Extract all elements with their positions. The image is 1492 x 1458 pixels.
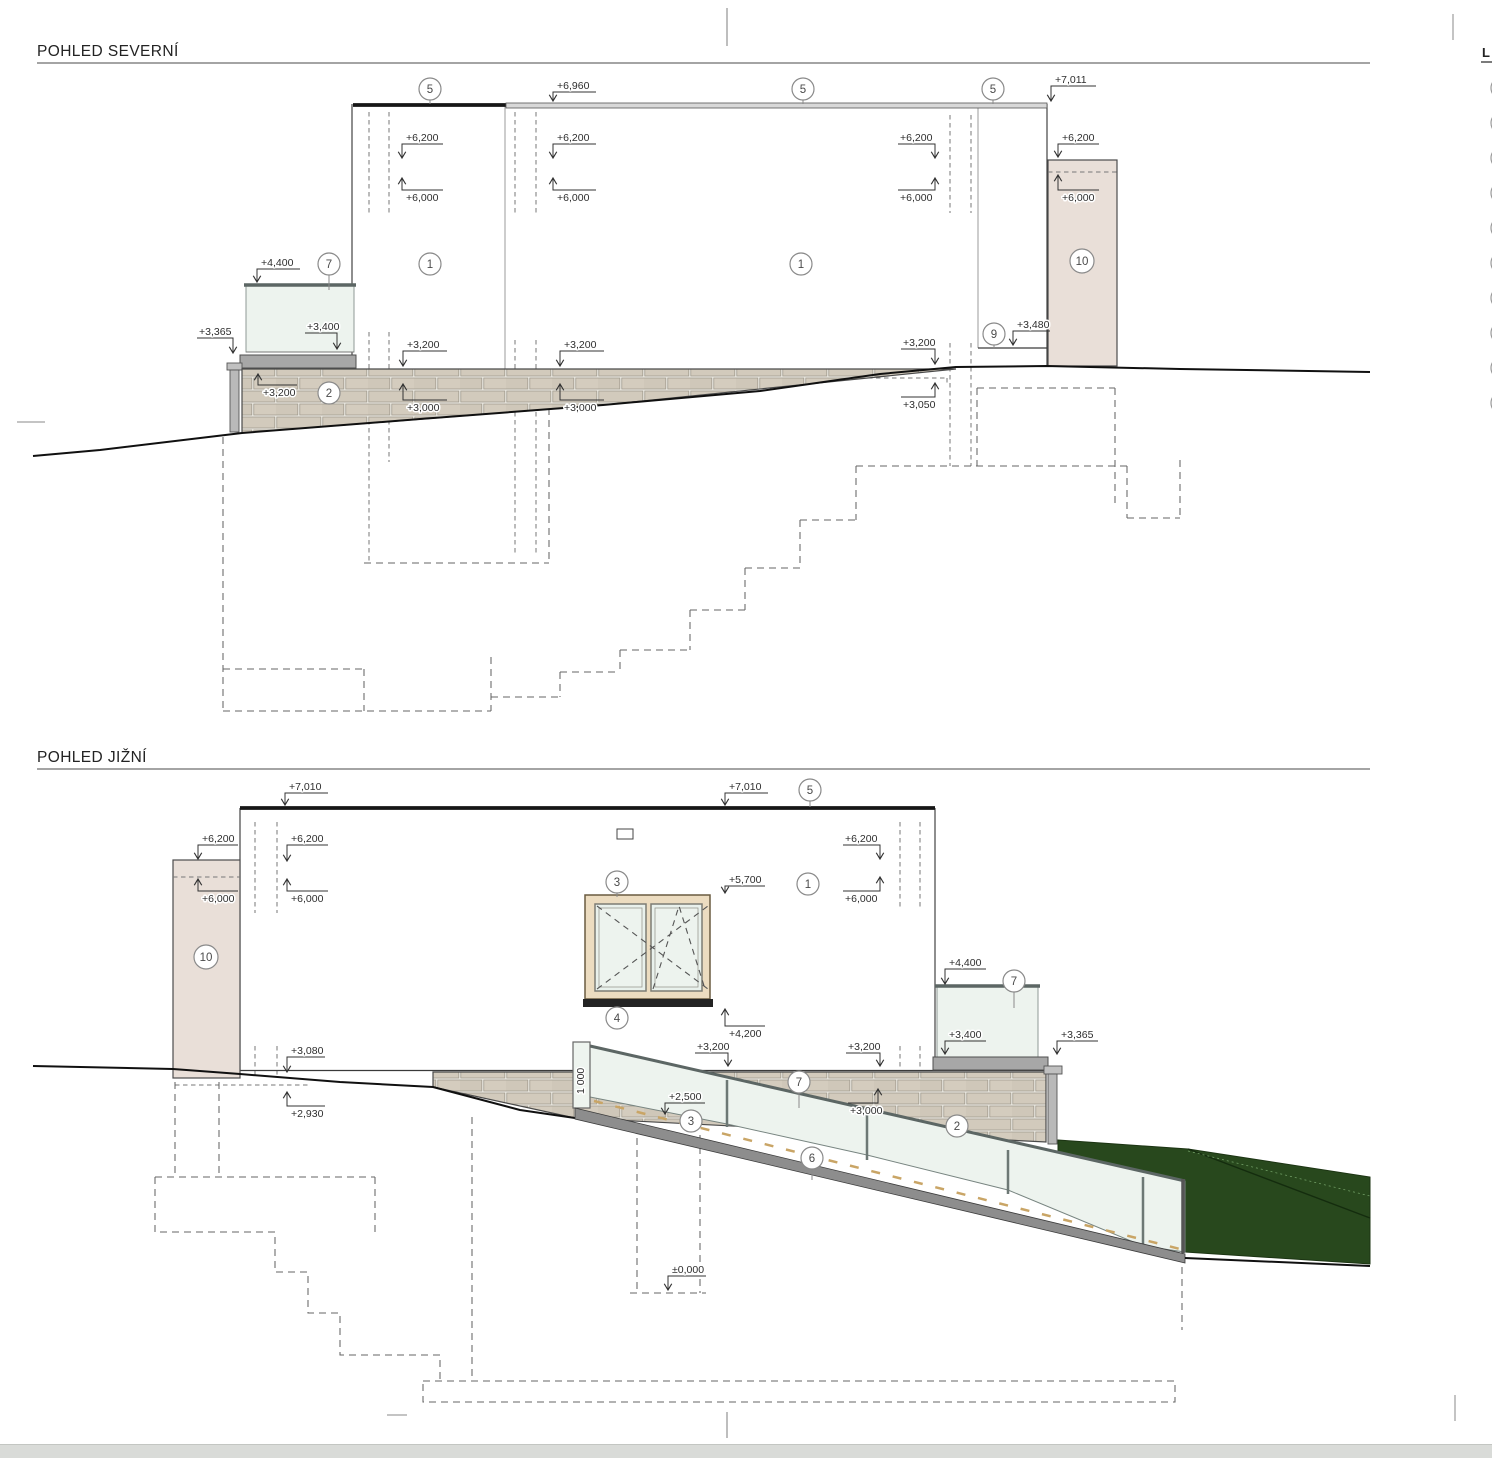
svg-text:7: 7 xyxy=(326,259,332,271)
callout-balloon: 2 xyxy=(946,1115,968,1137)
svg-text:1: 1 xyxy=(798,259,804,271)
legend-heading: L xyxy=(1482,45,1490,60)
svg-text:+6,960: +6,960 xyxy=(557,80,590,92)
svg-text:+7,010: +7,010 xyxy=(729,781,762,793)
level-label: +6,200 xyxy=(287,833,328,861)
level-label: +4,400 xyxy=(945,957,986,984)
svg-text:2: 2 xyxy=(326,388,332,400)
level-label: +3,365 xyxy=(197,326,233,353)
level-label: +3,050 xyxy=(901,383,936,411)
svg-text:10: 10 xyxy=(200,952,213,964)
svg-text:+5,700: +5,700 xyxy=(729,874,762,886)
svg-text:+6,000: +6,000 xyxy=(291,893,324,905)
svg-text:+6,200: +6,200 xyxy=(845,833,878,845)
svg-text:+3,200: +3,200 xyxy=(903,337,936,349)
svg-text:+3,200: +3,200 xyxy=(564,339,597,351)
callout-balloon: 10 xyxy=(1070,249,1094,273)
svg-text:+6,000: +6,000 xyxy=(202,893,235,905)
svg-text:+6,200: +6,200 xyxy=(1062,132,1095,144)
level-label: +3,200 xyxy=(695,1041,730,1066)
svg-text:+3,400: +3,400 xyxy=(307,321,340,333)
svg-text:+3,200: +3,200 xyxy=(848,1041,881,1053)
level-label: +3,200 xyxy=(846,1041,881,1066)
level-label: +6,200 xyxy=(898,132,935,158)
svg-text:4: 4 xyxy=(614,1013,621,1025)
level-label: +6,200 xyxy=(553,132,596,158)
elevation-drawing: POHLED SEVERNÍ xyxy=(0,0,1492,1458)
svg-text:+3,000: +3,000 xyxy=(850,1105,883,1117)
svg-text:10: 10 xyxy=(1076,256,1089,268)
level-label: +3,200 xyxy=(901,337,936,364)
svg-text:+6,200: +6,200 xyxy=(406,132,439,144)
level-label: +3,080 xyxy=(287,1045,325,1072)
level-label: +3,480 xyxy=(1013,319,1050,345)
svg-text:+4,400: +4,400 xyxy=(261,257,294,269)
callout-balloon: 1 xyxy=(790,253,812,275)
svg-text:+6,000: +6,000 xyxy=(406,192,439,204)
vent-opening xyxy=(617,829,633,839)
north-hidden-lines xyxy=(252,112,971,563)
svg-text:+7,010: +7,010 xyxy=(289,781,322,793)
callout-balloon: 10 xyxy=(194,945,218,969)
callout-balloon: 4 xyxy=(606,1007,628,1029)
level-label: +6,000 xyxy=(843,877,880,905)
svg-text:+3,050: +3,050 xyxy=(903,399,936,411)
level-label: +3,365 xyxy=(1057,1029,1098,1054)
callout-balloon: 2 xyxy=(318,382,340,404)
svg-text:5: 5 xyxy=(990,84,996,96)
svg-text:3: 3 xyxy=(688,1116,694,1128)
svg-text:+4,400: +4,400 xyxy=(949,957,982,969)
level-label: +3,200 xyxy=(560,339,604,366)
callout-balloon: 3 xyxy=(680,1110,702,1132)
south-downpipe xyxy=(1048,1074,1057,1144)
south-coping xyxy=(933,1057,1048,1070)
svg-text:+3,000: +3,000 xyxy=(564,402,597,414)
level-label: +3,200 xyxy=(403,339,447,366)
north-downpipe xyxy=(227,363,242,432)
svg-text:2: 2 xyxy=(954,1121,960,1133)
svg-text:+3,200: +3,200 xyxy=(697,1041,730,1053)
svg-text:7: 7 xyxy=(1011,976,1017,988)
svg-text:+3,000: +3,000 xyxy=(407,402,440,414)
svg-text:1: 1 xyxy=(805,879,811,891)
svg-text:+3,365: +3,365 xyxy=(1061,1029,1094,1041)
level-label: +2,930 xyxy=(287,1092,325,1120)
svg-text:+3,400: +3,400 xyxy=(949,1029,982,1041)
level-label: +6,200 xyxy=(1058,132,1099,157)
level-label: +6,000 xyxy=(402,178,443,204)
level-label: +5,700 xyxy=(725,874,765,893)
window xyxy=(583,895,713,1007)
svg-text:+3,200: +3,200 xyxy=(263,387,296,399)
south-elevation: POHLED JIŽNÍ xyxy=(33,749,1370,1402)
svg-text:+6,000: +6,000 xyxy=(900,192,933,204)
svg-text:1: 1 xyxy=(427,259,433,271)
level-label: +6,000 xyxy=(287,879,328,905)
svg-text:+2,500: +2,500 xyxy=(669,1091,702,1103)
svg-text:+6,000: +6,000 xyxy=(557,192,590,204)
svg-text:+3,200: +3,200 xyxy=(407,339,440,351)
north-sill xyxy=(240,355,356,368)
ramp-post-dimension: 1 000 xyxy=(575,1068,587,1094)
callout-balloon: 1 xyxy=(419,253,441,275)
callout-balloon: 5 xyxy=(799,779,821,807)
north-elevation: POHLED SEVERNÍ xyxy=(33,43,1370,711)
level-label: +4,200 xyxy=(725,1009,765,1040)
drawing-sheet: POHLED SEVERNÍ xyxy=(0,0,1492,1458)
svg-text:+6,000: +6,000 xyxy=(1062,192,1095,204)
svg-text:5: 5 xyxy=(807,785,813,797)
level-label: +7,010 xyxy=(725,781,768,805)
callout-balloon: 5 xyxy=(982,78,1004,104)
level-label: ±0,000 xyxy=(668,1264,706,1290)
level-label: +6,960 xyxy=(553,80,596,101)
svg-text:5: 5 xyxy=(427,84,433,96)
svg-text:5: 5 xyxy=(800,84,806,96)
svg-text:+6,000: +6,000 xyxy=(845,893,878,905)
svg-text:+3,480: +3,480 xyxy=(1017,319,1050,331)
level-label: +6,000 xyxy=(898,178,935,204)
svg-text:+6,200: +6,200 xyxy=(557,132,590,144)
callout-balloon: 5 xyxy=(419,78,441,104)
level-label: +4,400 xyxy=(257,257,300,282)
horizontal-scrollbar[interactable] xyxy=(0,1444,1492,1458)
svg-text:+6,200: +6,200 xyxy=(202,833,235,845)
level-label: +7,011 xyxy=(1051,74,1096,101)
south-level-labels: +7,010 +7,010 +6,200 +6,000 +6,200 +6,00… xyxy=(198,781,1098,1290)
north-building-outline xyxy=(352,103,1047,369)
legend-panel: L xyxy=(1481,45,1492,414)
svg-text:+3,080: +3,080 xyxy=(291,1045,324,1057)
svg-text:6: 6 xyxy=(809,1153,815,1165)
svg-text:+4,200: +4,200 xyxy=(729,1028,762,1040)
svg-text:+6,200: +6,200 xyxy=(291,833,324,845)
svg-text:+7,011: +7,011 xyxy=(1055,74,1087,86)
window-sill xyxy=(583,999,713,1007)
callout-balloon: 5 xyxy=(792,78,814,104)
level-label: +6,200 xyxy=(198,833,238,859)
south-title: POHLED JIŽNÍ xyxy=(37,749,147,766)
svg-text:+6,200: +6,200 xyxy=(900,132,933,144)
level-label: +6,200 xyxy=(843,833,880,859)
callout-balloon: 3 xyxy=(606,871,628,897)
svg-text:9: 9 xyxy=(991,329,997,341)
level-label: +7,010 xyxy=(285,781,328,805)
svg-text:±0,000: ±0,000 xyxy=(672,1264,704,1276)
callout-balloon: 1 xyxy=(797,873,819,895)
svg-text:3: 3 xyxy=(614,877,620,889)
level-label: +6,200 xyxy=(402,132,443,158)
north-title: POHLED SEVERNÍ xyxy=(37,43,179,60)
callout-balloon: 9 xyxy=(983,323,1005,349)
level-label: +6,000 xyxy=(553,178,596,204)
svg-text:+3,365: +3,365 xyxy=(199,326,232,338)
svg-text:+2,930: +2,930 xyxy=(291,1108,324,1120)
svg-text:7: 7 xyxy=(796,1077,802,1089)
